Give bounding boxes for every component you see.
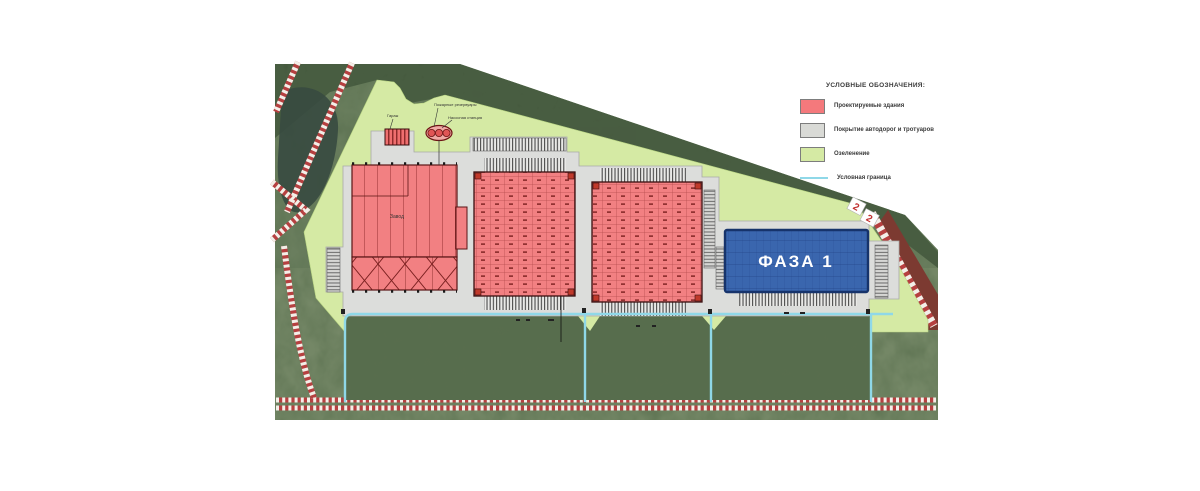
legend-label-boundary: Условная граница bbox=[837, 175, 891, 181]
docks-b2-top bbox=[484, 158, 566, 172]
corner-block bbox=[695, 295, 701, 301]
mark bbox=[866, 309, 870, 314]
fire-tanks-label: Пожарные резервуары bbox=[434, 102, 477, 107]
site-plan-stage: Завод ФАЗА 1 Гараж Пожарные резервуары bbox=[0, 0, 1200, 486]
parking-ladder-left bbox=[327, 248, 340, 292]
building-3-hall bbox=[592, 182, 702, 302]
corner-block bbox=[593, 183, 599, 189]
legend: УСЛОВНЫЕ ОБОЗНАЧЕНИЯ: Проектируемые здан… bbox=[800, 82, 960, 194]
building-2-hall bbox=[474, 172, 575, 296]
building-3 bbox=[592, 182, 702, 302]
legend-title: УСЛОВНЫЕ ОБОЗНАЧЕНИЯ: bbox=[826, 82, 960, 89]
parking-ladder-right bbox=[875, 245, 888, 298]
tank bbox=[435, 129, 442, 136]
garage-label: Гараж bbox=[387, 113, 399, 118]
lower-plots bbox=[345, 316, 870, 400]
legend-swatch-pavement bbox=[800, 123, 825, 138]
corner-block bbox=[475, 173, 481, 179]
dim-mark bbox=[652, 325, 656, 327]
legend-item-greenery: Озеленение bbox=[800, 146, 960, 162]
garage-building bbox=[385, 129, 409, 145]
corner-block bbox=[568, 173, 574, 179]
building-1-hall bbox=[352, 165, 457, 257]
building-1-label: Завод bbox=[390, 214, 404, 220]
dim-mark bbox=[800, 312, 805, 314]
building-phase1: ФАЗА 1 bbox=[725, 230, 868, 292]
plot-grass-texture bbox=[345, 316, 870, 400]
dim-mark bbox=[548, 319, 554, 321]
dim-mark bbox=[636, 325, 640, 327]
docks-b2-bottom bbox=[484, 296, 566, 310]
parking-ladder-mid bbox=[704, 190, 715, 268]
docks-phase1-bottom bbox=[739, 292, 857, 306]
corner-block bbox=[695, 183, 701, 189]
phase1-label: ФАЗА 1 bbox=[758, 252, 833, 271]
corner-block bbox=[593, 295, 599, 301]
legend-label-greenery: Озеленение bbox=[834, 151, 870, 157]
tank bbox=[443, 129, 450, 136]
mark bbox=[708, 309, 712, 314]
legend-swatch-buildings bbox=[800, 99, 825, 114]
docks-b3-top bbox=[600, 168, 686, 182]
dim-mark bbox=[516, 319, 520, 321]
tank bbox=[428, 129, 435, 136]
corner-block bbox=[568, 289, 574, 295]
legend-label-pavement: Покрытие автодорог и тротуаров bbox=[834, 127, 934, 133]
mark bbox=[582, 308, 586, 313]
building-1-annex bbox=[456, 207, 467, 249]
legend-item-buildings: Проектируемые здания bbox=[800, 98, 960, 114]
legend-swatch-greenery bbox=[800, 147, 825, 162]
legend-label-buildings: Проектируемые здания bbox=[834, 103, 904, 109]
pump-station-label: Насосная станция bbox=[448, 115, 482, 120]
legend-swatch-boundary bbox=[800, 177, 828, 179]
corner-block bbox=[475, 289, 481, 295]
mark bbox=[341, 309, 345, 314]
legend-item-pavement: Покрытие автодорог и тротуаров bbox=[800, 122, 960, 138]
dim-mark bbox=[784, 312, 789, 314]
parking-comb-top bbox=[473, 138, 566, 151]
building-2 bbox=[474, 172, 575, 296]
parking-ladder-blue-left bbox=[716, 247, 724, 289]
site-plan-drawing: Завод ФАЗА 1 Гараж Пожарные резервуары bbox=[0, 0, 1200, 486]
building-1-factory: Завод bbox=[352, 164, 467, 292]
building-1-lower bbox=[352, 257, 457, 290]
legend-item-boundary: Условная граница bbox=[800, 170, 960, 186]
dim-mark bbox=[526, 319, 530, 321]
